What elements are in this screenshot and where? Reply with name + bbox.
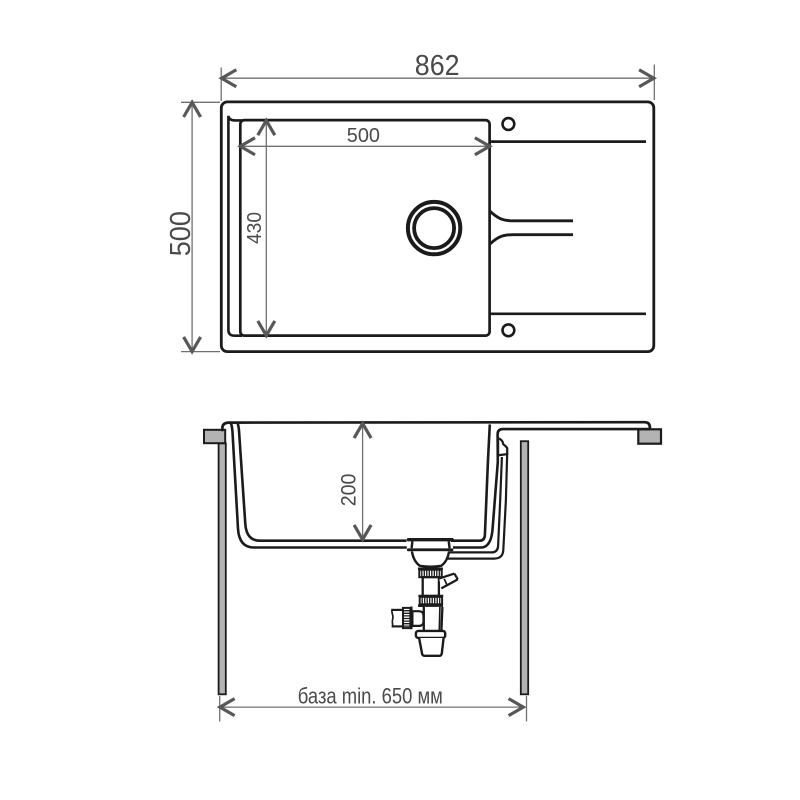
svg-text:430: 430 — [244, 212, 266, 244]
svg-text:база min. 650 мм: база min. 650 мм — [298, 683, 443, 708]
svg-text:862: 862 — [415, 50, 460, 82]
svg-text:500: 500 — [347, 125, 380, 147]
svg-text:200: 200 — [337, 474, 360, 507]
svg-text:500: 500 — [165, 211, 197, 256]
